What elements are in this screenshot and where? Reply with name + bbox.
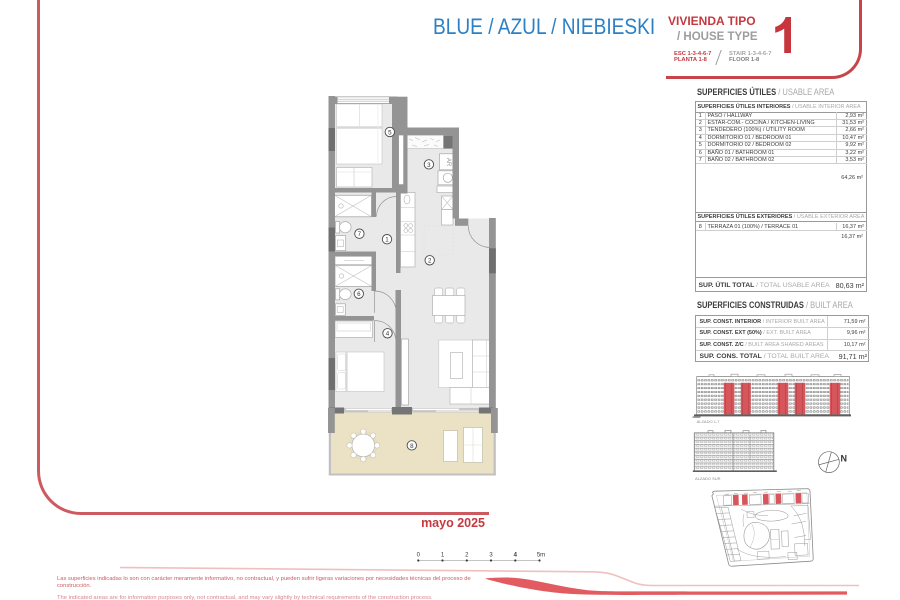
- svg-text:7: 7: [358, 231, 362, 238]
- svg-text:2: 2: [428, 258, 432, 265]
- svg-text:1: 1: [385, 237, 389, 244]
- svg-text:6: 6: [357, 291, 361, 298]
- svg-text:ALZADO SUR: ALZADO SUR: [695, 476, 721, 481]
- svg-text:3: 3: [427, 162, 431, 169]
- svg-text:ALZADO 1-7: ALZADO 1-7: [697, 419, 721, 424]
- svg-text:5: 5: [388, 129, 392, 136]
- svg-text:N: N: [841, 454, 848, 464]
- svg-text:AR: AR: [445, 158, 451, 167]
- svg-text:8: 8: [410, 443, 414, 450]
- svg-text:4: 4: [386, 331, 390, 338]
